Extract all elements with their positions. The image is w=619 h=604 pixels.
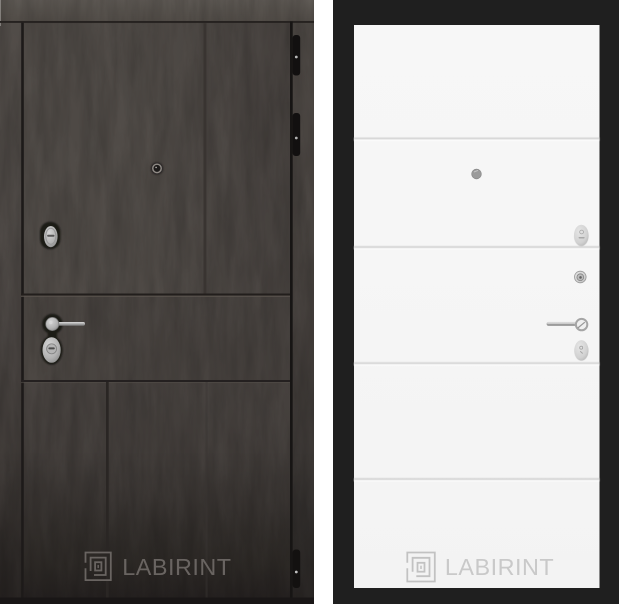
svg-text:LABIRINT: LABIRINT xyxy=(445,554,554,580)
svg-text:LABIRINT: LABIRINT xyxy=(122,554,231,580)
